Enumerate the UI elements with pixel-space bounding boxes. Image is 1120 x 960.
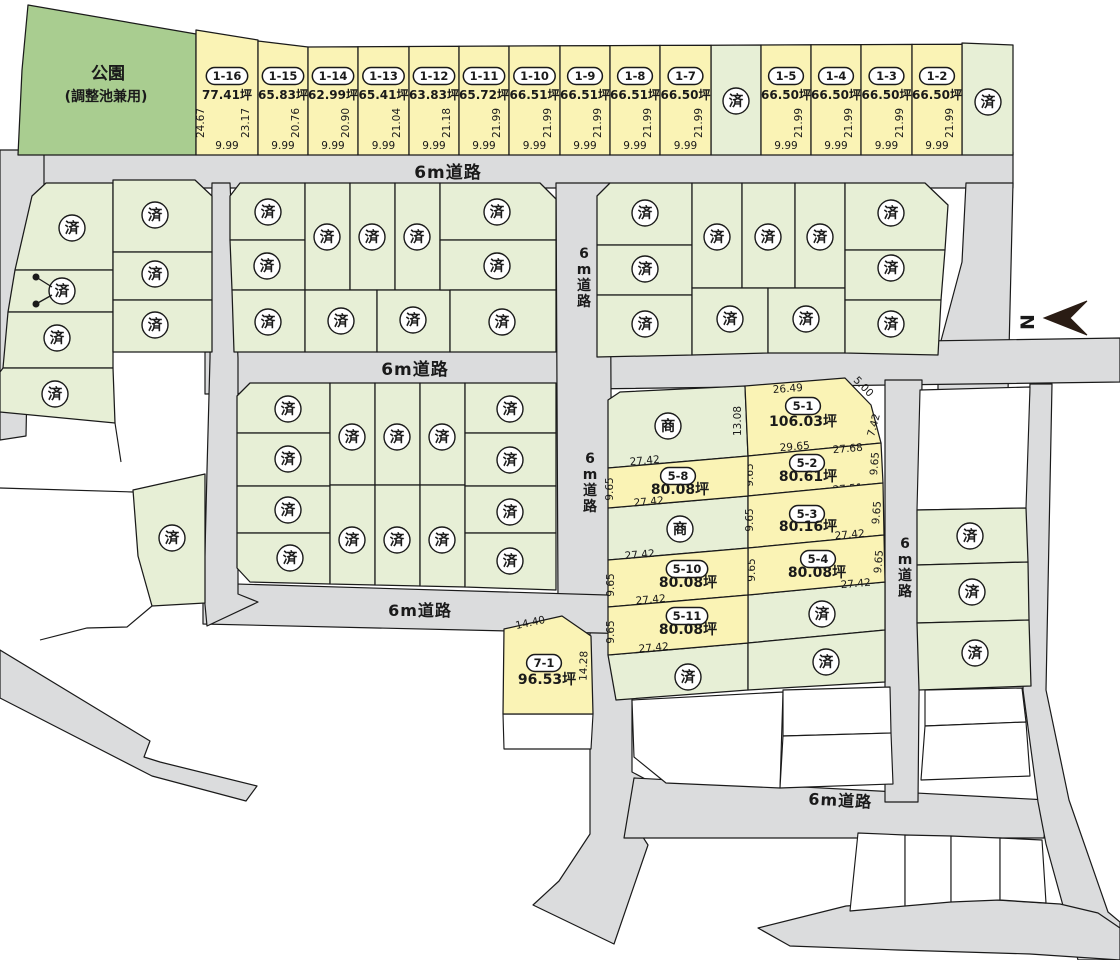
vacant-parcel [783, 687, 891, 736]
sold-label: 済 [981, 93, 996, 111]
plot-area-label: 66.50坪 [661, 88, 711, 102]
plot-id-label: 5-1 [793, 399, 814, 413]
sold-label: 済 [723, 310, 738, 328]
plot-measurement: 20.76 [290, 108, 302, 138]
sold-label: 済 [148, 265, 163, 283]
plot-area-label: 66.50坪 [761, 88, 811, 102]
plot-area-label: 80.08坪 [788, 565, 846, 581]
plot-measurement: 21.99 [944, 108, 956, 138]
plot-measurement: 9.99 [215, 140, 238, 152]
road-label: 6m道路 [388, 601, 452, 620]
plot-measurement: 9.99 [674, 140, 697, 152]
plot-measurement: 14.28 [577, 651, 590, 681]
plot-id-label: 7-1 [534, 656, 555, 670]
sold-label: 済 [148, 316, 163, 334]
parcel-boundary [0, 488, 133, 492]
plot-measurement: 21.99 [843, 108, 855, 138]
sold-label: 済 [710, 228, 725, 246]
plot-measurement: 21.99 [642, 108, 654, 138]
plot-id-label: 1-13 [369, 69, 398, 83]
road-label-vertical: 道 [577, 277, 591, 294]
plot-id-label: 1-16 [213, 69, 242, 83]
plot-measurement: 9.99 [271, 140, 294, 152]
road-label-vertical: m [583, 467, 598, 483]
sold-label: 済 [799, 310, 814, 328]
plot-measurement: 21.99 [542, 108, 554, 138]
plot-area-label: 80.08坪 [659, 622, 717, 638]
vacant-parcel [1000, 838, 1046, 903]
plot-measurement: 9.99 [472, 140, 495, 152]
road-label-vertical: 路 [583, 498, 598, 515]
vacant-parcel [917, 387, 1030, 510]
sold-label: 済 [334, 312, 349, 330]
land-plot-map: 公園(調整池兼用)済済済済済済済済済済済済済済済済済済済済済済済済済済済済済済済… [0, 0, 1120, 960]
plot-measurement: 9.99 [824, 140, 847, 152]
plot-measurement: 9.99 [623, 140, 646, 152]
sold-label: 済 [260, 257, 275, 275]
road-segment [0, 650, 257, 801]
sold-label: 済 [281, 400, 296, 418]
plot-area-label: 63.83坪 [409, 88, 459, 102]
road-label-vertical: 6 [579, 246, 589, 262]
sold-label: 済 [261, 313, 276, 331]
sold-label: 済 [761, 228, 776, 246]
north-arrow-icon [1044, 301, 1087, 335]
sold-label: 済 [819, 653, 834, 671]
plot-id-label: 1-4 [826, 69, 847, 83]
sold-label: 済 [490, 257, 505, 275]
plot-measurement: 21.99 [894, 108, 906, 138]
plot-measurement: 9.99 [573, 140, 596, 152]
plot-measurement: 9.99 [422, 140, 445, 152]
plot-id-label: 1-15 [269, 69, 298, 83]
sold-label: 済 [435, 531, 450, 549]
sold-label: 済 [729, 92, 744, 110]
plot-area-label: 66.50坪 [912, 88, 962, 102]
plot-measurement: 9.99 [774, 140, 797, 152]
sold-label: 済 [884, 204, 899, 222]
sold-label: 済 [503, 503, 518, 521]
vacant-parcel [921, 722, 1030, 780]
plot-measurement: 9.65 [605, 620, 617, 643]
plot-id-label: 1-11 [470, 69, 499, 83]
plot-measurement: 9.99 [875, 140, 898, 152]
vacant-parcel [850, 833, 905, 911]
sold-label: 済 [435, 428, 450, 446]
plot-measurement: 21.99 [693, 108, 705, 138]
sold-label: 済 [813, 228, 828, 246]
sold-label: 済 [390, 428, 405, 446]
plot-area-label: 66.50坪 [862, 88, 912, 102]
plot-measurement: 21.99 [793, 108, 805, 138]
vacant-parcel [632, 692, 783, 788]
plot-id-label: 1-12 [420, 69, 449, 83]
plot-measurement: 24.67 [195, 108, 207, 138]
plot-measurement: 9.65 [744, 508, 756, 531]
north-label: N [1017, 314, 1039, 330]
road-segment [758, 898, 1120, 960]
road-label-vertical: 6 [585, 451, 595, 467]
plot-measurement: 9.99 [523, 140, 546, 152]
sold-label: 済 [148, 206, 163, 224]
commercial-label: 商 [673, 520, 688, 538]
sold-label: 済 [503, 400, 518, 418]
plot-id-label: 1-2 [927, 69, 948, 83]
sold-label: 済 [390, 531, 405, 549]
plot-area-label: 66.51坪 [510, 88, 560, 102]
plot-area-label: 96.53坪 [518, 672, 576, 688]
sold-label: 済 [165, 529, 180, 547]
vacant-parcel [780, 733, 893, 788]
sold-label: 済 [681, 668, 696, 686]
parcel-boundary [40, 606, 152, 640]
plot-area-label: 66.51坪 [560, 88, 610, 102]
sold-label: 済 [410, 228, 425, 246]
plot-id-label: 1-10 [520, 69, 549, 83]
sold-label: 済 [638, 260, 653, 278]
park-label: 公園 [91, 64, 125, 84]
road-label-vertical: m [577, 262, 592, 278]
vacant-parcel [905, 835, 951, 906]
banner-no-building-conditions: 建築条件なし [303, 808, 513, 856]
plot-measurement: 9.65 [872, 550, 886, 574]
plot-area-label: 77.41坪 [202, 88, 252, 102]
sold-label: 済 [638, 204, 653, 222]
sold-label: 済 [638, 315, 653, 333]
parcel-boundary [115, 423, 121, 462]
sold-label: 済 [345, 531, 360, 549]
plot-area-label: 80.61坪 [779, 469, 837, 485]
plot-measurement: 21.99 [491, 108, 503, 138]
park-sublabel: (調整池兼用) [65, 88, 148, 105]
plot-measurement: 9.99 [372, 140, 395, 152]
sold-label: 済 [490, 203, 505, 221]
sold-label: 済 [963, 527, 978, 545]
sold-label: 済 [406, 311, 421, 329]
plot-area-label: 65.72坪 [459, 88, 509, 102]
plot-id-label: 1-5 [776, 69, 797, 83]
sold-label: 済 [50, 329, 65, 347]
sold-label: 済 [365, 228, 380, 246]
sold-label: 済 [345, 428, 360, 446]
plot-measurement: 9.99 [925, 140, 948, 152]
plot-measurement: 21.18 [441, 108, 453, 138]
sold-label: 済 [281, 450, 296, 468]
sold-label: 済 [320, 228, 335, 246]
plot-measurement: 21.99 [592, 108, 604, 138]
sold-label: 済 [884, 259, 899, 277]
road-label-vertical: 道 [583, 482, 597, 499]
road-label-vertical: 道 [898, 567, 912, 584]
sold-label: 済 [503, 552, 518, 570]
sold-label: 済 [815, 605, 830, 623]
banner-tsubo-adjustable: 坪数増減可! [303, 751, 513, 799]
plot-id-label: 1-7 [675, 69, 696, 83]
plot-measurement: 26.49 [772, 382, 803, 396]
plot-measurement: 9.65 [605, 573, 617, 596]
sold-label: 済 [281, 501, 296, 519]
sold-label: 済 [495, 313, 510, 331]
plot-area-label: 62.99坪 [308, 88, 358, 102]
sold-label: 済 [48, 385, 63, 403]
plot-area-label: 106.03坪 [769, 414, 837, 430]
plot-area-label: 80.08坪 [659, 575, 717, 591]
sold-label: 済 [503, 451, 518, 469]
plot-id-label: 1-3 [876, 69, 897, 83]
sold-label: 済 [283, 549, 298, 567]
plot-measurement: 9.65 [604, 477, 616, 500]
road-label-vertical: 路 [577, 293, 592, 310]
plot-measurement: 21.04 [391, 108, 403, 138]
road-label: 6m道路 [808, 789, 873, 811]
sold-label: 済 [884, 315, 899, 333]
road-label-vertical: 路 [898, 583, 913, 600]
plot-measurement: 23.17 [240, 108, 252, 138]
plot-id-label: 1-9 [575, 69, 596, 83]
plot-area-label: 65.41坪 [359, 88, 409, 102]
plot-measurement: 9.65 [868, 452, 882, 476]
plot-area-label: 66.51坪 [610, 88, 660, 102]
sold-label: 済 [968, 644, 983, 662]
road-label: 6m道路 [381, 359, 449, 380]
plot-id-label: 1-14 [319, 69, 348, 83]
sold-label: 済 [65, 219, 80, 237]
plot-measurement: 20.90 [340, 108, 352, 138]
sold-label: 済 [965, 583, 980, 601]
vacant-parcel [503, 714, 593, 749]
road-label: 6m道路 [414, 162, 482, 183]
plot-measurement: 9.99 [321, 140, 344, 152]
road-label-vertical: m [898, 552, 913, 568]
commercial-label: 商 [661, 417, 676, 435]
plot-measurement: 13.08 [732, 406, 744, 436]
plot-id-label: 1-8 [625, 69, 646, 83]
plot-measurement: 9.65 [870, 501, 884, 525]
sold-label: 済 [261, 203, 276, 221]
vacant-parcel [951, 836, 1000, 902]
vacant-parcel [925, 688, 1026, 726]
plot-area-label: 80.16坪 [779, 519, 837, 535]
sold-label: 済 [55, 282, 70, 300]
road-label-vertical: 6 [900, 536, 910, 552]
subdivision-map-canvas: 公園(調整池兼用)済済済済済済済済済済済済済済済済済済済済済済済済済済済済済済済… [0, 0, 1120, 960]
plot-area-label: 66.50坪 [811, 88, 861, 102]
plot-area-label: 65.83坪 [258, 88, 308, 102]
